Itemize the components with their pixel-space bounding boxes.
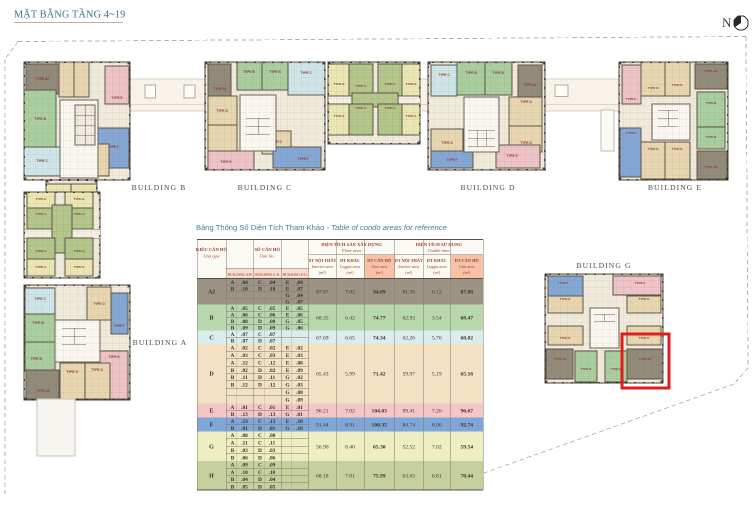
svg-text:C: C — [258, 306, 262, 312]
svg-text:.03: .03 — [296, 353, 303, 359]
svg-text:5.19: 5.19 — [432, 372, 442, 378]
svg-text:.05: .05 — [296, 306, 303, 312]
svg-text:104.03: 104.03 — [372, 409, 388, 415]
svg-text:A: A — [231, 345, 235, 351]
svg-text:E: E — [286, 419, 290, 425]
svg-text:.02: .02 — [296, 375, 303, 381]
svg-text:68.35: 68.35 — [316, 316, 329, 322]
svg-text:.12: .12 — [241, 360, 248, 366]
svg-text:D: D — [258, 484, 262, 490]
svg-text:.09: .09 — [296, 368, 303, 374]
svg-text:.01: .01 — [241, 405, 248, 411]
svg-text:D: D — [258, 455, 262, 461]
svg-text:SỐ CĂN HỘ: SỐ CĂN HỘ — [254, 247, 280, 252]
svg-text:8.00: 8.00 — [432, 423, 442, 429]
svg-text:A: A — [231, 306, 235, 312]
svg-text:DT KHÁC: DT KHÁC — [427, 258, 447, 263]
svg-text:7.02: 7.02 — [432, 444, 442, 450]
svg-text:D: D — [258, 448, 262, 454]
svg-text:DIỆN TÍCH SÀN XÂY DỰNG: DIỆN TÍCH SÀN XÂY DỰNG — [321, 242, 382, 247]
svg-text:C: C — [258, 441, 262, 447]
svg-text:A: A — [231, 312, 235, 318]
svg-text:DIỆN TÍCH SỬ DỤNG: DIỆN TÍCH SỬ DỤNG — [416, 242, 463, 247]
svg-text:C: C — [258, 405, 262, 411]
svg-text:.11: .11 — [269, 441, 276, 447]
svg-text:E: E — [286, 286, 290, 292]
svg-text:7.02: 7.02 — [345, 290, 355, 296]
svg-text:.13: .13 — [269, 412, 276, 418]
svg-text:.09: .09 — [241, 325, 248, 331]
svg-text:D: D — [258, 426, 262, 432]
svg-text:B: B — [231, 325, 235, 331]
svg-text:96.21: 96.21 — [316, 409, 329, 415]
svg-text:.08: .08 — [269, 319, 276, 325]
svg-text:A: A — [231, 463, 235, 469]
svg-text:.10: .10 — [269, 470, 276, 476]
svg-text:C: C — [258, 353, 262, 359]
svg-text:D: D — [258, 368, 262, 374]
svg-text:.13: .13 — [241, 412, 248, 418]
svg-text:.08: .08 — [296, 390, 303, 396]
svg-text:G: G — [209, 444, 214, 450]
svg-text:.05: .05 — [241, 484, 248, 490]
svg-text:62.26: 62.26 — [402, 335, 415, 341]
svg-text:.07: .07 — [296, 299, 303, 305]
svg-text:N: N — [722, 15, 732, 30]
svg-text:MẶT BẰNG TẦNG 4~19: MẶT BẰNG TẦNG 4~19 — [14, 8, 125, 21]
svg-text:7.26: 7.26 — [432, 409, 442, 415]
svg-text:100.35: 100.35 — [372, 423, 388, 429]
svg-text:6.42: 6.42 — [345, 316, 355, 322]
svg-text:65.43: 65.43 — [316, 372, 329, 378]
svg-text:.13: .13 — [241, 419, 248, 425]
svg-text:D: D — [258, 383, 262, 389]
svg-text:65.30: 65.30 — [373, 444, 386, 450]
svg-text:87.88: 87.88 — [460, 290, 473, 296]
svg-text:62.93: 62.93 — [402, 316, 415, 322]
svg-text:81.76: 81.76 — [402, 290, 415, 296]
svg-text:B: B — [231, 455, 235, 461]
svg-text:A2: A2 — [208, 290, 215, 296]
svg-text:D: D — [258, 338, 262, 344]
svg-text:.04: .04 — [296, 293, 303, 299]
svg-text:Bảng Thông Số Diện Tích Tham K: Bảng Thông Số Diện Tích Tham Khảo - Tabl… — [196, 223, 447, 232]
svg-text:.02: .02 — [269, 345, 276, 351]
svg-text:67.69: 67.69 — [316, 335, 329, 341]
svg-text:B: B — [231, 383, 235, 389]
svg-text:Unit type: Unit type — [203, 254, 219, 259]
svg-text:BUILDING C: BUILDING C — [238, 183, 293, 192]
svg-text:B: B — [209, 316, 213, 322]
svg-text:E: E — [286, 405, 290, 411]
svg-text:56.90: 56.90 — [316, 444, 329, 450]
svg-text:89.41: 89.41 — [402, 409, 415, 415]
svg-text:.06: .06 — [296, 325, 303, 331]
svg-text:DT CĂN HỘ: DT CĂN HỘ — [367, 258, 392, 263]
svg-text:52.52: 52.52 — [402, 444, 415, 450]
svg-text:BUILDING A-B: BUILDING A-B — [228, 273, 252, 277]
svg-text:6.12: 6.12 — [432, 290, 442, 296]
svg-text:68.18: 68.18 — [316, 474, 329, 480]
svg-text:KIỂU CĂN HỘ: KIỂU CĂN HỘ — [196, 247, 228, 252]
svg-text:.10: .10 — [241, 470, 248, 476]
svg-text:.11: .11 — [269, 375, 276, 381]
svg-text:.01: .01 — [241, 426, 248, 432]
svg-text:E: E — [286, 345, 290, 351]
svg-text:D: D — [258, 325, 262, 331]
svg-text:A: A — [231, 332, 235, 338]
svg-text:DT KHÁC: DT KHÁC — [340, 258, 360, 263]
svg-text:(m²): (m²) — [319, 270, 327, 275]
svg-text:B: B — [231, 477, 235, 483]
svg-text:.08: .08 — [296, 360, 303, 366]
svg-text:.04: .04 — [296, 280, 303, 286]
svg-text:Unit No.: Unit No. — [260, 254, 275, 259]
svg-text:7.02: 7.02 — [345, 409, 355, 415]
svg-text:B: B — [231, 375, 235, 381]
svg-text:B: B — [231, 412, 235, 418]
svg-text:.09: .09 — [296, 398, 303, 404]
svg-text:96.67: 96.67 — [460, 409, 473, 415]
svg-text:71.42: 71.42 — [373, 372, 386, 378]
svg-text:75.99: 75.99 — [373, 474, 386, 480]
svg-text:D: D — [258, 375, 262, 381]
svg-text:.01: .01 — [269, 405, 276, 411]
svg-text:.05: .05 — [296, 319, 303, 325]
svg-text:.02: .02 — [296, 345, 303, 351]
svg-text:D: D — [209, 372, 214, 378]
svg-text:.11: .11 — [241, 375, 248, 381]
svg-text:.04: .04 — [269, 280, 276, 286]
svg-text:68.47: 68.47 — [460, 316, 473, 322]
svg-text:5.99: 5.99 — [345, 372, 355, 378]
svg-text:.01: .01 — [269, 426, 276, 432]
svg-text:DT CĂN HỘ: DT CĂN HỘ — [455, 258, 480, 263]
svg-text:(m²): (m²) — [433, 270, 441, 275]
svg-text:Floor area: Floor area — [341, 248, 362, 253]
svg-text:(m²): (m²) — [347, 270, 355, 275]
svg-text:BUILDING D: BUILDING D — [460, 183, 515, 192]
svg-text:5.76: 5.76 — [432, 335, 442, 341]
svg-text:B: B — [231, 448, 235, 454]
svg-text:B: B — [231, 368, 235, 374]
svg-text:A: A — [231, 353, 235, 359]
svg-text:Usable area: Usable area — [428, 248, 450, 253]
svg-text:84.74: 84.74 — [402, 423, 415, 429]
svg-text:74.77: 74.77 — [373, 316, 386, 322]
svg-text:D: D — [258, 412, 262, 418]
svg-text:DT NỘI THẤT: DT NỘI THẤT — [395, 258, 423, 263]
svg-text:F: F — [210, 423, 214, 429]
svg-text:.12: .12 — [269, 360, 276, 366]
svg-text:6.81: 6.81 — [432, 474, 442, 480]
svg-text:59.97: 59.97 — [402, 372, 415, 378]
svg-text:B: B — [231, 338, 235, 344]
svg-text:C: C — [258, 463, 262, 469]
svg-text:.06: .06 — [269, 312, 276, 318]
svg-text:.02: .02 — [269, 368, 276, 374]
svg-text:.09: .09 — [269, 463, 276, 469]
svg-text:A: A — [231, 419, 235, 425]
svg-text:.07: .07 — [241, 332, 248, 338]
svg-text:BUILDING B: BUILDING B — [132, 183, 187, 192]
svg-text:Unit area: Unit area — [371, 264, 387, 269]
svg-text:.04: .04 — [241, 477, 248, 483]
svg-text:(m²): (m²) — [463, 270, 471, 275]
svg-text:.09: .09 — [269, 325, 276, 331]
svg-text:.05: .05 — [241, 306, 248, 312]
svg-text:BUILDING C-D: BUILDING C-D — [255, 273, 280, 277]
svg-text:A: A — [231, 433, 235, 439]
svg-text:.07: .07 — [241, 338, 248, 344]
svg-text:A: A — [231, 280, 235, 286]
svg-text:.10: .10 — [296, 426, 303, 432]
svg-text:C: C — [258, 280, 262, 286]
svg-text:BUILDING E: BUILDING E — [648, 183, 702, 192]
svg-text:C: C — [209, 335, 213, 341]
svg-text:.03: .03 — [296, 383, 303, 389]
svg-text:D: D — [258, 319, 262, 325]
svg-text:.13: .13 — [269, 419, 276, 425]
svg-text:BUILDING A: BUILDING A — [133, 338, 188, 347]
svg-text:D: D — [258, 286, 262, 292]
svg-text:C: C — [258, 433, 262, 439]
svg-text:Loggia area: Loggia area — [339, 264, 360, 269]
svg-text:(m²): (m²) — [376, 270, 384, 275]
svg-text:.10: .10 — [269, 286, 276, 292]
svg-text:.08: .08 — [241, 433, 248, 439]
svg-text:94.89: 94.89 — [373, 290, 386, 296]
svg-text:.12: .12 — [269, 383, 276, 389]
svg-text:59.54: 59.54 — [460, 444, 473, 450]
svg-text:.05: .05 — [269, 484, 276, 490]
svg-text:.07: .07 — [269, 338, 276, 344]
svg-text:65.16: 65.16 — [460, 372, 473, 378]
svg-text:.06: .06 — [296, 312, 303, 318]
svg-text:A: A — [231, 441, 235, 447]
svg-text:.06: .06 — [241, 312, 248, 318]
svg-text:92.74: 92.74 — [460, 423, 473, 429]
svg-text:74.34: 74.34 — [373, 335, 386, 341]
svg-text:.03: .03 — [269, 353, 276, 359]
svg-text:Interior area: Interior area — [397, 264, 419, 269]
svg-text:C: C — [258, 470, 262, 476]
svg-text:(m²): (m²) — [405, 270, 413, 275]
svg-text:BUILDING E-G: BUILDING E-G — [283, 273, 307, 277]
svg-text:8.91: 8.91 — [345, 423, 355, 429]
svg-text:B: B — [231, 484, 235, 490]
svg-text:.01: .01 — [296, 405, 303, 411]
svg-text:68.02: 68.02 — [460, 335, 473, 341]
svg-text:E: E — [286, 368, 290, 374]
svg-text:A: A — [231, 470, 235, 476]
svg-text:.03: .03 — [241, 353, 248, 359]
svg-text:.03: .03 — [241, 448, 248, 454]
svg-text:.10: .10 — [241, 286, 248, 292]
svg-text:.10: .10 — [296, 419, 303, 425]
svg-text:.08: .08 — [269, 433, 276, 439]
svg-text:A: A — [231, 405, 235, 411]
svg-text:.06: .06 — [269, 455, 276, 461]
svg-text:70.44: 70.44 — [460, 474, 473, 480]
svg-text:BUILDING G: BUILDING G — [576, 261, 631, 270]
svg-text:E: E — [286, 306, 290, 312]
svg-text:B: B — [231, 319, 235, 325]
svg-text:DT NỘI THẤT: DT NỘI THẤT — [308, 258, 336, 263]
svg-text:C: C — [258, 360, 262, 366]
svg-text:B: B — [231, 286, 235, 292]
svg-text:.06: .06 — [241, 455, 248, 461]
svg-text:.04: .04 — [241, 280, 248, 286]
svg-text:.07: .07 — [296, 286, 303, 292]
svg-text:7.81: 7.81 — [345, 474, 355, 480]
svg-text:E: E — [286, 312, 290, 318]
svg-text:.05: .05 — [269, 306, 276, 312]
svg-text:.04: .04 — [269, 477, 276, 483]
svg-text:63.63: 63.63 — [402, 474, 415, 480]
svg-text:C: C — [258, 332, 262, 338]
svg-text:A: A — [231, 360, 235, 366]
svg-text:D: D — [258, 477, 262, 483]
svg-text:.12: .12 — [241, 383, 248, 389]
svg-text:H: H — [209, 474, 214, 480]
svg-text:.03: .03 — [269, 448, 276, 454]
svg-text:.11: .11 — [241, 441, 248, 447]
svg-text:91.44: 91.44 — [316, 423, 329, 429]
svg-text:.02: .02 — [241, 368, 248, 374]
svg-text:E: E — [286, 360, 290, 366]
svg-text:E: E — [286, 353, 290, 359]
svg-text:3.54: 3.54 — [432, 316, 442, 322]
svg-text:.02: .02 — [241, 345, 248, 351]
svg-text:.08: .08 — [241, 319, 248, 325]
svg-text:C: C — [258, 312, 262, 318]
svg-text:.07: .07 — [269, 332, 276, 338]
svg-text:Interior area: Interior area — [311, 264, 333, 269]
svg-text:C: C — [258, 419, 262, 425]
svg-text:Loggia area: Loggia area — [426, 264, 447, 269]
svg-text:.01: .01 — [296, 412, 303, 418]
svg-text:B: B — [231, 426, 235, 432]
svg-text:Unit area: Unit area — [459, 264, 475, 269]
svg-text:E: E — [209, 409, 213, 415]
svg-text:8.40: 8.40 — [345, 444, 355, 450]
svg-text:6.65: 6.65 — [345, 335, 355, 341]
svg-text:E: E — [286, 280, 290, 286]
svg-text:C: C — [258, 345, 262, 351]
svg-text:.09: .09 — [241, 463, 248, 469]
svg-text:87.87: 87.87 — [316, 290, 329, 296]
